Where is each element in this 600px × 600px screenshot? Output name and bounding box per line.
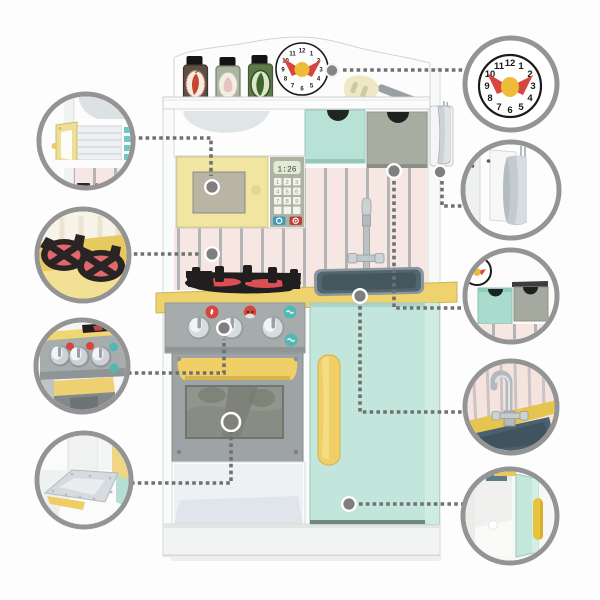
svg-text:12: 12 xyxy=(299,49,306,55)
svg-text:12: 12 xyxy=(505,58,516,69)
svg-text:1: 1 xyxy=(276,180,279,186)
svg-text:7: 7 xyxy=(276,199,279,205)
svg-text:1:26: 1:26 xyxy=(277,166,296,175)
svg-text:3: 3 xyxy=(295,180,298,186)
svg-text:7: 7 xyxy=(496,102,501,113)
svg-text:6: 6 xyxy=(295,190,298,196)
svg-text:4: 4 xyxy=(527,93,533,104)
svg-text:11: 11 xyxy=(289,52,296,58)
svg-text:8: 8 xyxy=(487,93,492,104)
svg-text:9: 9 xyxy=(484,81,489,92)
svg-text:2: 2 xyxy=(286,180,289,186)
svg-text:8: 8 xyxy=(286,199,289,205)
svg-text:6: 6 xyxy=(507,105,512,116)
svg-text:4: 4 xyxy=(276,190,279,196)
svg-text:5: 5 xyxy=(286,190,289,196)
svg-text:3: 3 xyxy=(530,81,535,92)
svg-text:9: 9 xyxy=(295,199,298,205)
svg-text:1: 1 xyxy=(518,61,524,72)
svg-text:11: 11 xyxy=(494,61,505,72)
svg-text:5: 5 xyxy=(518,102,524,113)
